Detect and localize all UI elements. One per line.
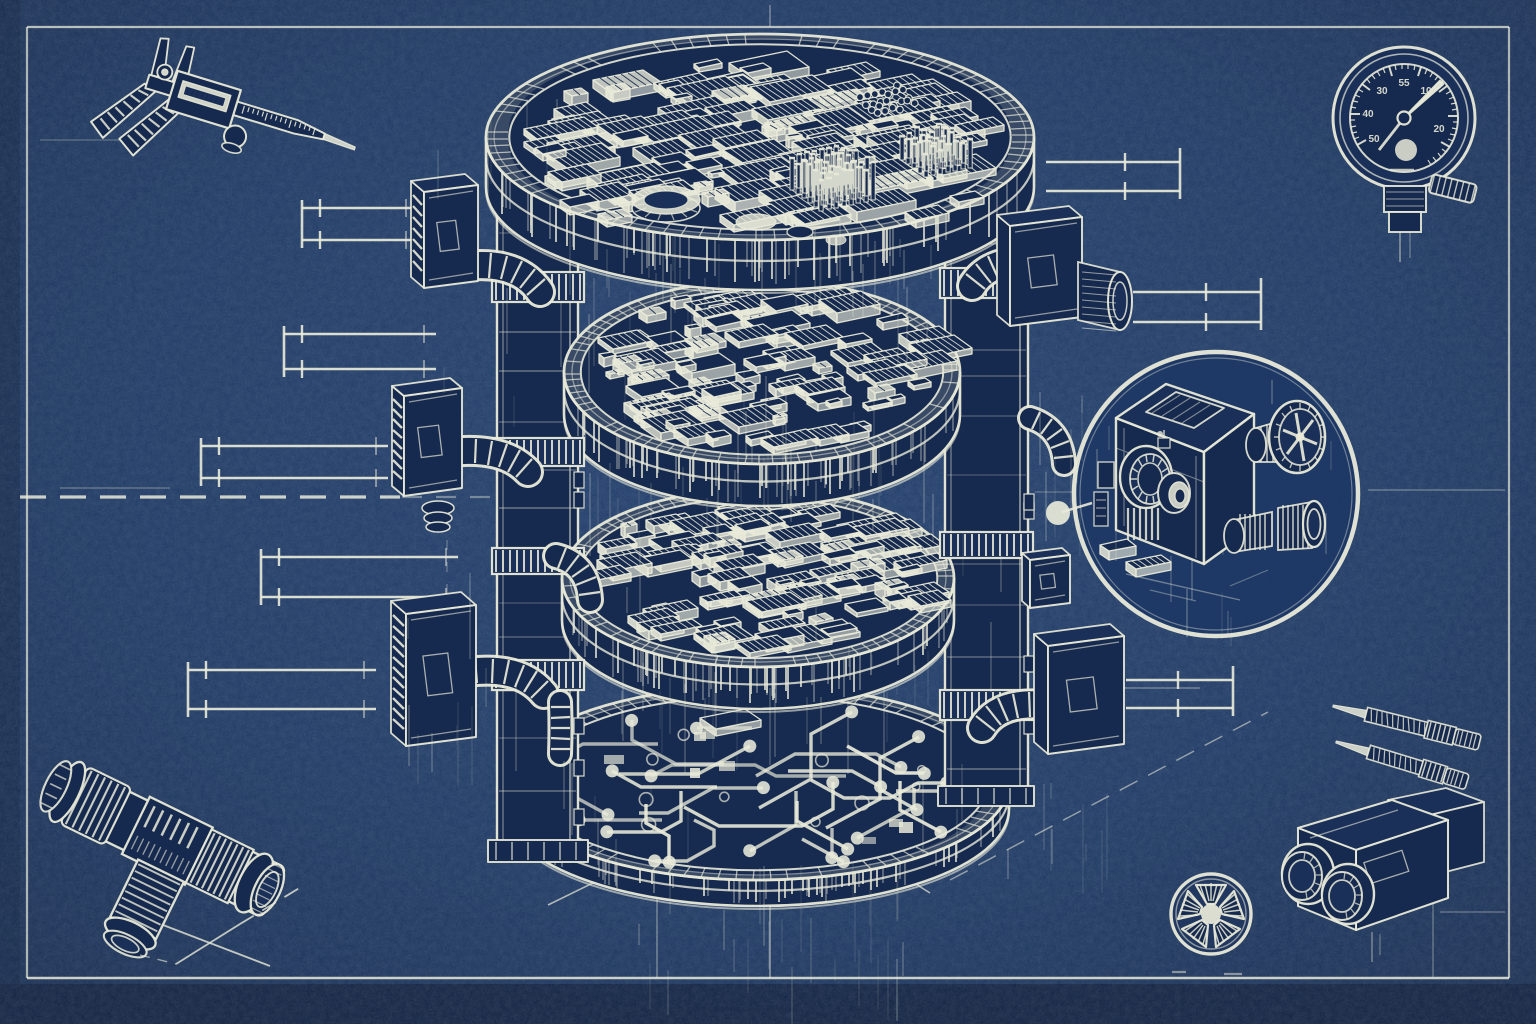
svg-text:40: 40 (1362, 109, 1374, 120)
svg-text:55: 55 (1398, 78, 1410, 89)
svg-text:50: 50 (1368, 134, 1380, 145)
svg-text:20: 20 (1433, 124, 1445, 135)
svg-text:30: 30 (1376, 86, 1388, 97)
